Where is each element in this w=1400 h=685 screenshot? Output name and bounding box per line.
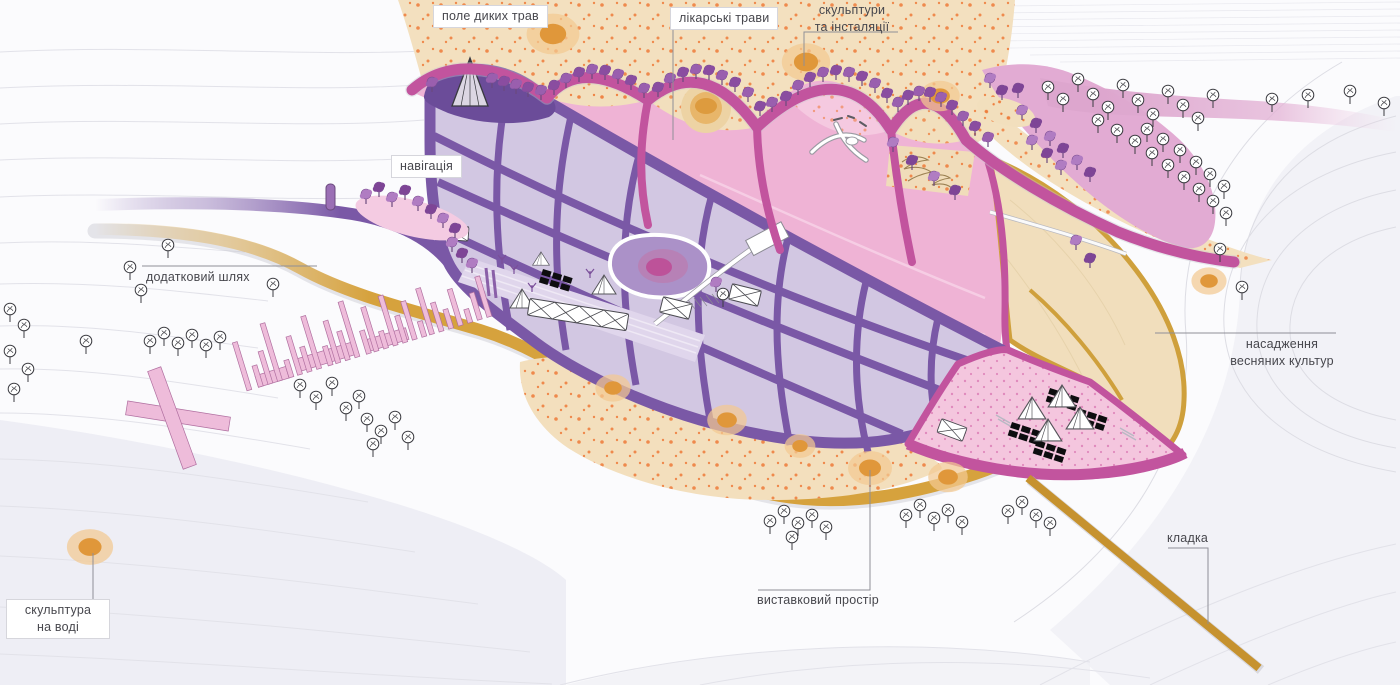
fine-hatch-lines [975, 2, 1400, 62]
label-spring-crops: насадження весняних культур [1222, 336, 1342, 370]
slab-installation [126, 259, 492, 470]
label-additional-path: додатковий шлях [146, 269, 250, 286]
label-sculptures-installations: скульптури та інсталяції [788, 2, 916, 36]
label-water-sculpture: скульптура на воді [6, 599, 110, 639]
water-sculpture-icon [67, 529, 113, 565]
pond-plaza [610, 235, 709, 297]
label-exhibition-space: виставковий простір [757, 592, 879, 609]
label-navigation: навігація [391, 155, 462, 178]
label-medicinal-herbs: лікарські трави [670, 7, 778, 30]
label-wild-grass-field: поле диких трав [433, 5, 548, 28]
masterplan-illustration [0, 0, 1400, 685]
navigation-pillar-icon [326, 184, 335, 210]
masterplan-canvas: поле диких трав лікарські трави скульпту… [0, 0, 1400, 685]
label-footbridge: кладка [1167, 530, 1208, 547]
